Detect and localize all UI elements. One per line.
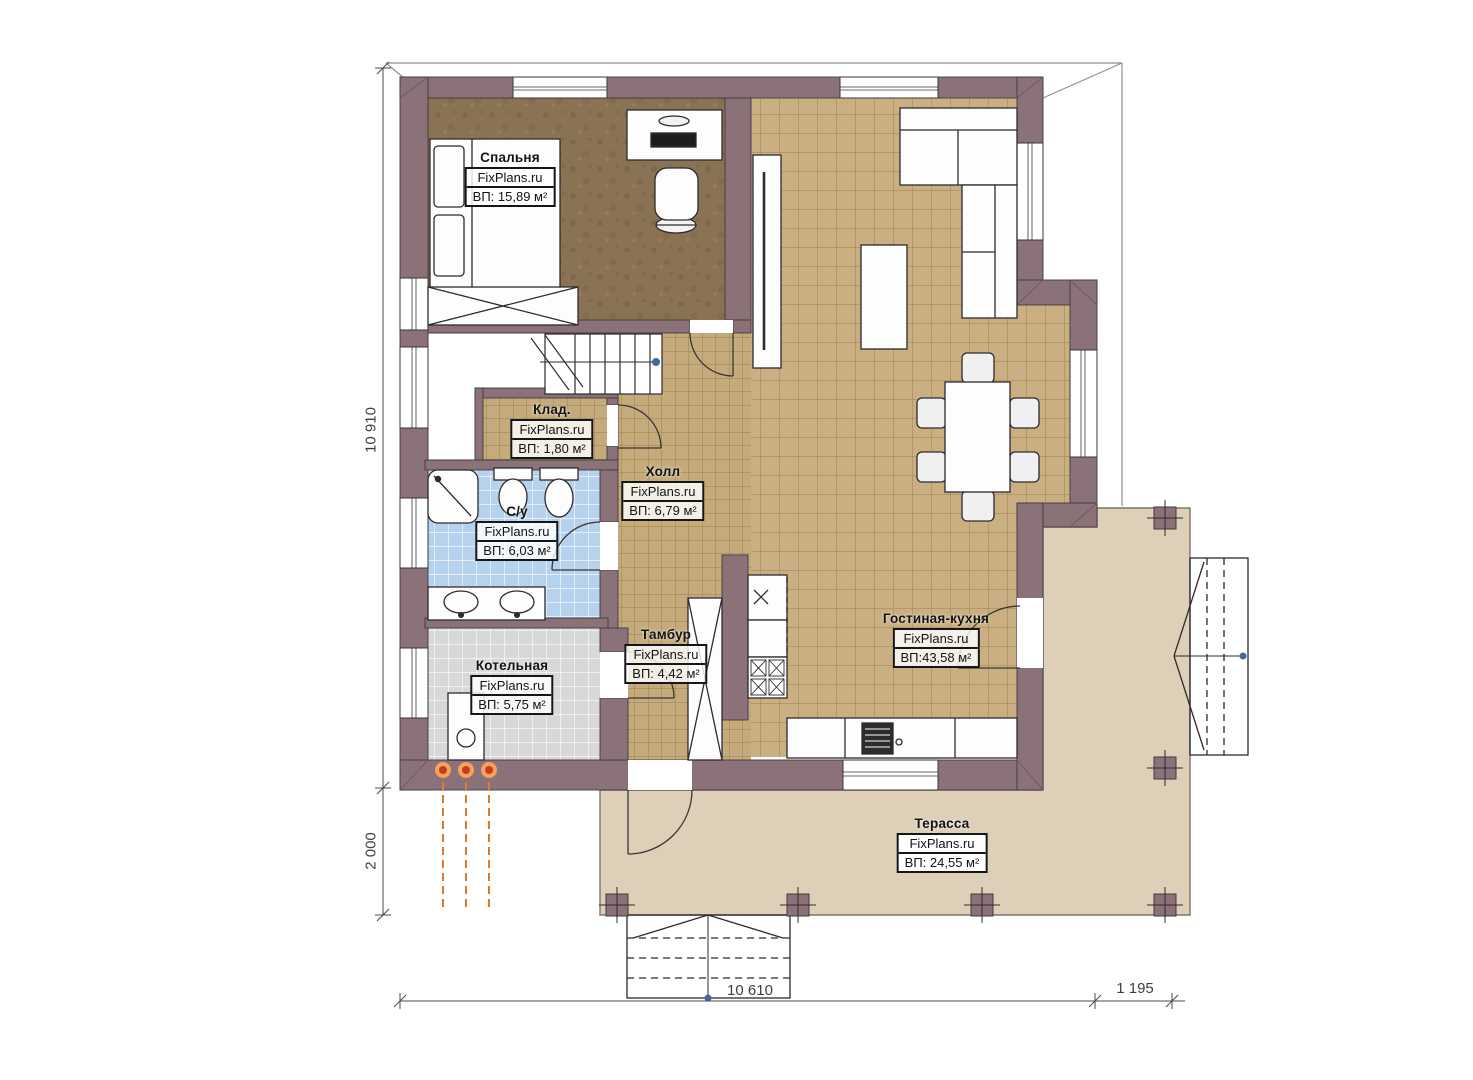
room-label-vestibule: Тамбур FixPlans.ru ВП: 4,42 м²: [624, 627, 707, 684]
room-area: ВП: 4,42 м²: [626, 663, 705, 682]
room-area: ВП: 6,03 м²: [477, 540, 556, 559]
room-area: ВП: 24,55 м²: [899, 852, 986, 871]
watermark: FixPlans.ru: [899, 835, 986, 852]
room-name: Гостиная-кухня: [883, 611, 989, 626]
floor-plan-drawing: [0, 0, 1473, 1080]
room-area: ВП: 6,79 м²: [623, 500, 702, 519]
room-label-bathroom: С/у FixPlans.ru ВП: 6,03 м²: [475, 504, 558, 561]
desk: [627, 110, 722, 160]
watermark: FixPlans.ru: [894, 630, 977, 647]
room-area: ВП:43,58 м²: [894, 647, 977, 666]
room-name: Котельная: [470, 658, 553, 673]
dimension-height-total: 10 910: [363, 407, 380, 453]
floor-plan-page: Спальня FixPlans.ru ВП: 15,89 м² Клад. F…: [0, 0, 1473, 1080]
bay-floor: [1043, 305, 1070, 503]
watermark: FixPlans.ru: [477, 523, 556, 540]
shower: [428, 470, 478, 523]
watermark: FixPlans.ru: [626, 646, 705, 663]
room-name: С/у: [475, 504, 558, 519]
kitchen-sink: [862, 723, 893, 754]
room-area: ВП: 5,75 м²: [472, 694, 551, 713]
wardrobe: [428, 287, 578, 325]
room-label-boiler: Котельная FixPlans.ru ВП: 5,75 м²: [470, 658, 553, 715]
dimension-height-terrace: 2 000: [363, 832, 380, 870]
room-name: Спальня: [465, 150, 556, 165]
room-name: Холл: [621, 464, 704, 479]
interior-stairs: [531, 334, 662, 394]
room-label-terrace: Терасса FixPlans.ru ВП: 24,55 м²: [897, 816, 988, 873]
watermark: FixPlans.ru: [467, 169, 554, 186]
dimension-width-house: 10 610: [727, 982, 773, 999]
watermark: FixPlans.ru: [472, 677, 551, 694]
room-area: ВП: 1,80 м²: [512, 438, 591, 457]
watermark: FixPlans.ru: [623, 483, 702, 500]
coffee-table: [861, 245, 907, 349]
watermark: FixPlans.ru: [512, 421, 591, 438]
dimension-width-side: 1 195: [1116, 980, 1154, 997]
desk-chair: [655, 168, 698, 233]
kitchen-counter: [787, 718, 1017, 758]
double-sink: [428, 587, 545, 620]
room-name: Тамбур: [624, 627, 707, 642]
room-label-hall: Холл FixPlans.ru ВП: 6,79 м²: [621, 464, 704, 521]
room-name: Клад.: [510, 402, 593, 417]
room-label-living: Гостиная-кухня FixPlans.ru ВП:43,58 м²: [883, 611, 989, 668]
room-area: ВП: 15,89 м²: [467, 186, 554, 205]
room-label-bedroom: Спальня FixPlans.ru ВП: 15,89 м²: [465, 150, 556, 207]
tv-unit: [753, 155, 781, 368]
room-name: Терасса: [897, 816, 988, 831]
room-label-storage: Клад. FixPlans.ru ВП: 1,80 м²: [510, 402, 593, 459]
